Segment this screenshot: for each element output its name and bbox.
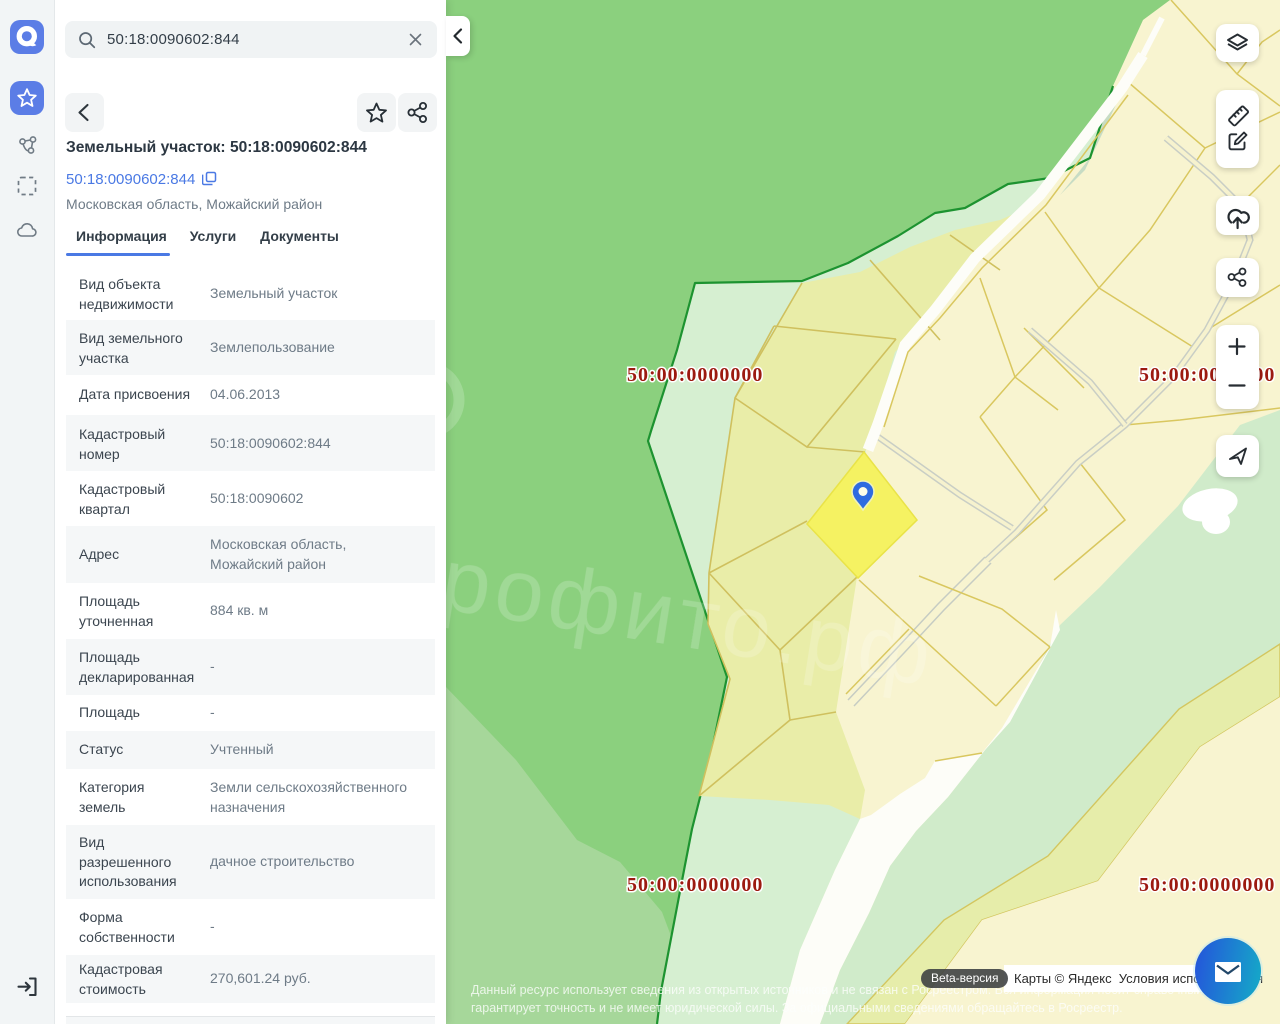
svg-text:50:00:0000000: 50:00:0000000 [627,364,763,386]
svg-text:50:00:0000000: 50:00:0000000 [627,874,763,896]
svg-text:50:00:0000000: 50:00:0000000 [1139,874,1275,896]
